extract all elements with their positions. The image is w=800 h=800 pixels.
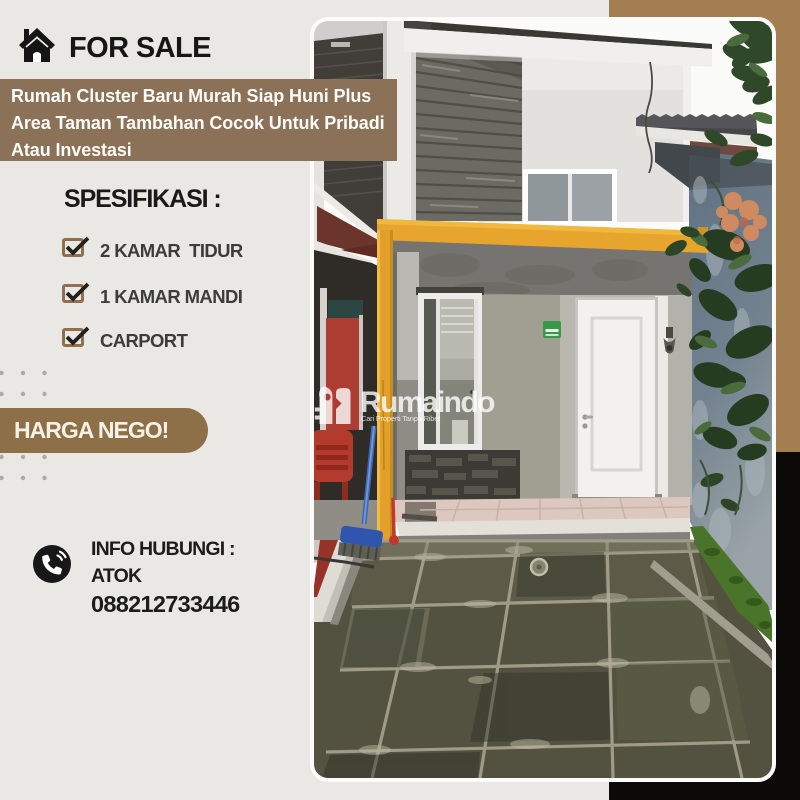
svg-text:Cari Properti Tanpa Ribet: Cari Properti Tanpa Ribet [361, 414, 441, 423]
